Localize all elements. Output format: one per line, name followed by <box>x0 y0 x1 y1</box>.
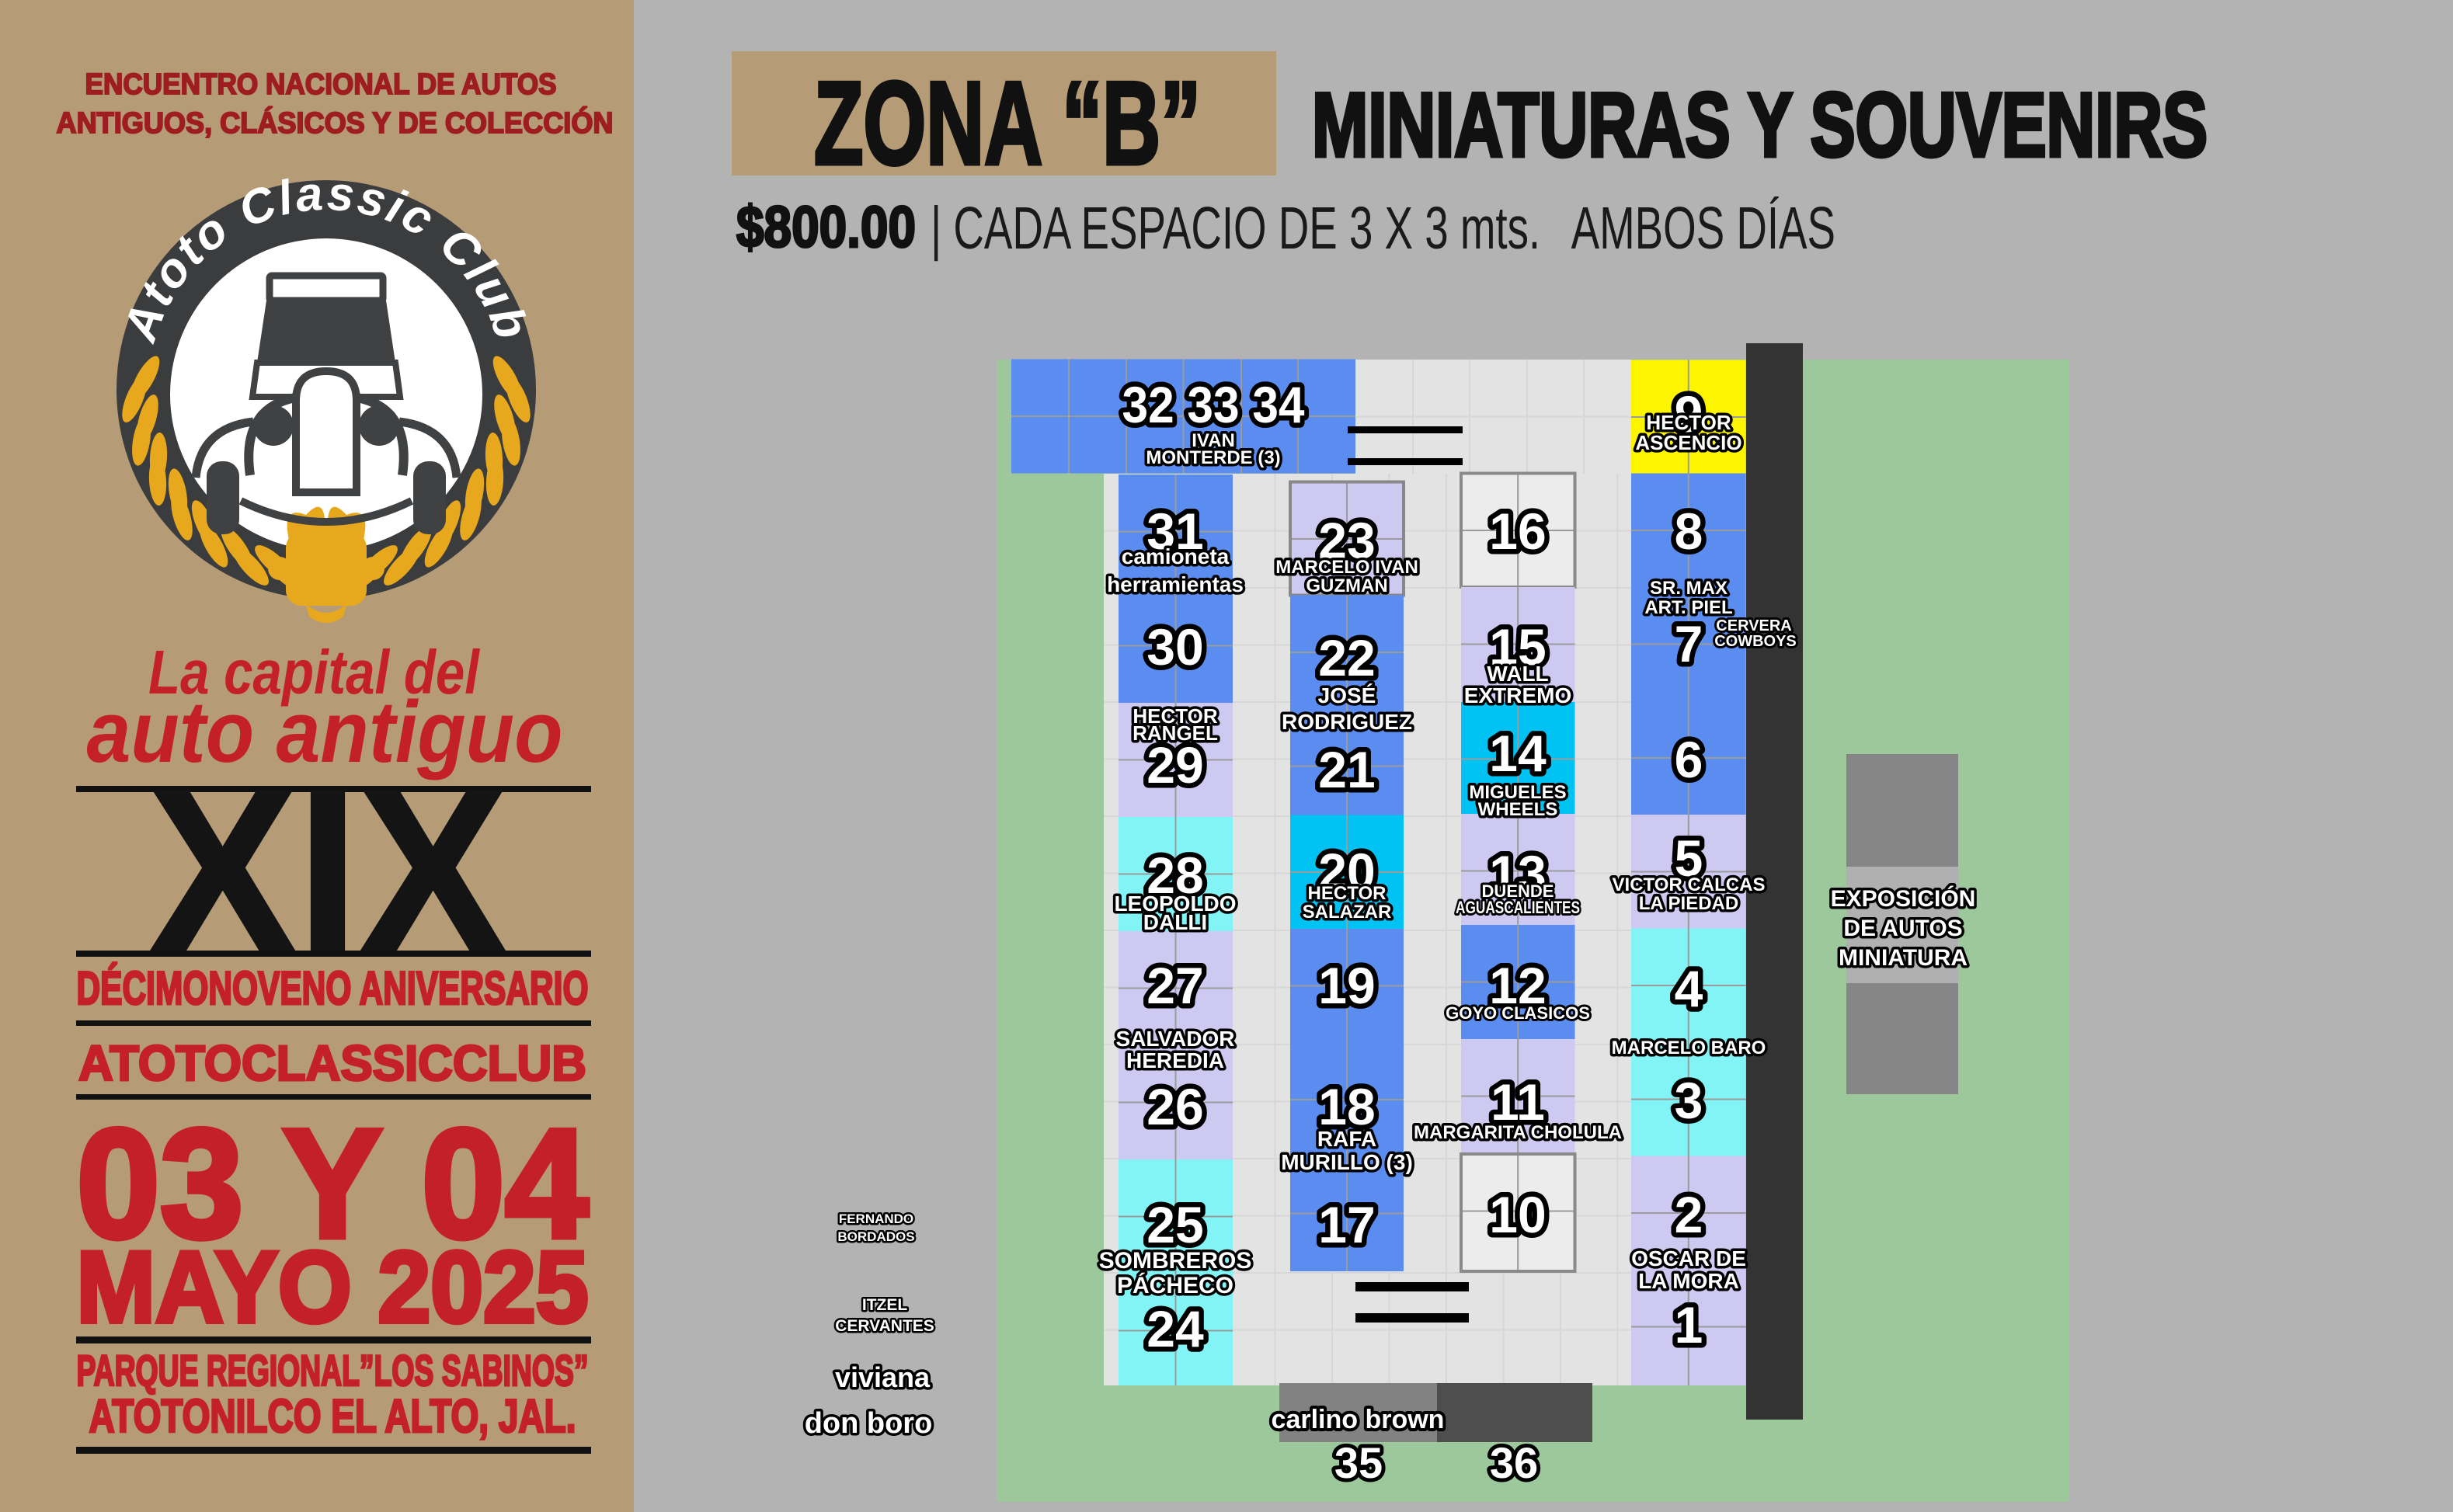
svg-text:LA PIEDAD: LA PIEDAD <box>1639 893 1738 914</box>
svg-text:LA MORA: LA MORA <box>1638 1269 1739 1293</box>
svg-text:7: 7 <box>1675 615 1703 673</box>
svg-text:29: 29 <box>1146 736 1203 794</box>
svg-text:camioneta: camioneta <box>1122 544 1230 568</box>
svg-text:viviana: viviana <box>835 1361 931 1393</box>
svg-text:2: 2 <box>1675 1186 1703 1243</box>
svg-text:ASCENCIO: ASCENCIO <box>1635 431 1741 454</box>
svg-text:CERVANTES: CERVANTES <box>835 1317 934 1335</box>
svg-text:DALLI: DALLI <box>1143 910 1207 934</box>
svg-text:24: 24 <box>1146 1300 1204 1357</box>
svg-text:SALVADOR: SALVADOR <box>1116 1027 1235 1051</box>
svg-text:GUZMAN: GUZMAN <box>1306 575 1387 596</box>
svg-text:ENCUENTRO NACIONAL DE AUTOS: ENCUENTRO NACIONAL DE AUTOS <box>85 68 557 101</box>
svg-text:RAFA: RAFA <box>1317 1127 1376 1151</box>
svg-text:MARCELO BARO: MARCELO BARO <box>1612 1038 1766 1058</box>
svg-text:EXTREMO: EXTREMO <box>1464 683 1571 707</box>
svg-text:COWBOYS: COWBOYS <box>1714 633 1797 650</box>
svg-text:8: 8 <box>1675 502 1703 560</box>
svg-text:27: 27 <box>1146 957 1203 1014</box>
svg-text:19: 19 <box>1318 957 1375 1014</box>
svg-text:MINIATURA: MINIATURA <box>1839 945 1968 971</box>
svg-text:MARCELO IVAN: MARCELO IVAN <box>1275 557 1418 578</box>
svg-text:HECTOR: HECTOR <box>1308 883 1387 904</box>
svg-text:30: 30 <box>1146 618 1203 676</box>
svg-text:ATOTOCLASSICCLUB: ATOTOCLASSICCLUB <box>78 1035 586 1091</box>
svg-text:25: 25 <box>1146 1196 1203 1253</box>
svg-text:don boro: don boro <box>805 1407 933 1440</box>
svg-text:VICTOR CALCAS: VICTOR CALCAS <box>1613 874 1766 895</box>
svg-text:carlino brown: carlino brown <box>1272 1405 1445 1434</box>
svg-text:32 33 34: 32 33 34 <box>1122 376 1305 433</box>
svg-text:14: 14 <box>1489 725 1547 782</box>
svg-text:36: 36 <box>1490 1438 1538 1487</box>
svg-text:ANTIGUOS, CLÁSICOS Y DE COLECC: ANTIGUOS, CLÁSICOS Y DE COLECCIÓN <box>57 106 614 140</box>
svg-text:3: 3 <box>1675 1072 1703 1129</box>
svg-text:RODRIGUEZ: RODRIGUEZ <box>1282 710 1412 734</box>
svg-text:MURILLO (3): MURILLO (3) <box>1281 1150 1413 1174</box>
svg-text:35: 35 <box>1334 1438 1383 1487</box>
svg-text:DÉCIMONOVENO ANIVERSARIO: DÉCIMONOVENO ANIVERSARIO <box>77 962 589 1014</box>
svg-text:MARGARITA CHOLULA: MARGARITA CHOLULA <box>1414 1122 1622 1143</box>
svg-text:WALL: WALL <box>1487 662 1548 686</box>
svg-text:JOSÉ: JOSÉ <box>1318 683 1376 707</box>
svg-text:BORDADOS: BORDADOS <box>837 1229 914 1244</box>
svg-text:21: 21 <box>1318 741 1375 798</box>
svg-text:22: 22 <box>1318 629 1375 686</box>
svg-text:$800.00: $800.00 <box>736 194 916 259</box>
svg-text:1: 1 <box>1675 1296 1703 1354</box>
svg-text:| CADA ESPACIO DE 3 X 3 mts.: | CADA ESPACIO DE 3 X 3 mts. AMBOS DÍAS <box>931 195 1835 262</box>
svg-text:OSCAR DE: OSCAR DE <box>1631 1246 1746 1270</box>
svg-text:MINIATURAS Y SOUVENIRS: MINIATURAS Y SOUVENIRS <box>1312 74 2208 176</box>
svg-text:GOYO CLASICOS: GOYO CLASICOS <box>1446 1003 1590 1023</box>
svg-text:WHEELS: WHEELS <box>1478 799 1558 820</box>
svg-text:herramientas: herramientas <box>1107 572 1244 596</box>
svg-text:ITZEL: ITZEL <box>862 1296 907 1314</box>
svg-text:MAYO 2025: MAYO 2025 <box>77 1230 589 1343</box>
svg-text:FERNANDO: FERNANDO <box>839 1211 913 1226</box>
svg-text:16: 16 <box>1489 502 1546 560</box>
svg-text:PÁCHECO: PÁCHECO <box>1117 1272 1233 1298</box>
svg-text:AGUASCALIENTES: AGUASCALIENTES <box>1456 898 1580 917</box>
svg-text:ZONA “B”: ZONA “B” <box>814 57 1201 189</box>
svg-text:PARQUE REGIONAL”LOS SABINOS”: PARQUE REGIONAL”LOS SABINOS” <box>77 1346 589 1395</box>
svg-text:EXPOSICIÓN: EXPOSICIÓN <box>1831 885 1976 912</box>
svg-text:HEREDIA: HEREDIA <box>1126 1048 1224 1072</box>
svg-text:MONTERDE (3): MONTERDE (3) <box>1146 447 1280 468</box>
svg-text:4: 4 <box>1675 960 1703 1017</box>
svg-text:CERVERA: CERVERA <box>1716 617 1791 634</box>
svg-text:26: 26 <box>1146 1078 1203 1135</box>
svg-text:6: 6 <box>1675 731 1703 788</box>
svg-text:ATOTONILCO EL ALTO, JAL.: ATOTONILCO EL ALTO, JAL. <box>89 1390 576 1442</box>
svg-text:SALAZAR: SALAZAR <box>1303 902 1392 923</box>
svg-text:SOMBREROS: SOMBREROS <box>1099 1248 1252 1274</box>
svg-text:17: 17 <box>1318 1196 1375 1253</box>
svg-text:10: 10 <box>1489 1186 1546 1243</box>
svg-text:SR. MAX: SR. MAX <box>1650 578 1728 599</box>
svg-text:DE AUTOS: DE AUTOS <box>1843 916 1962 941</box>
